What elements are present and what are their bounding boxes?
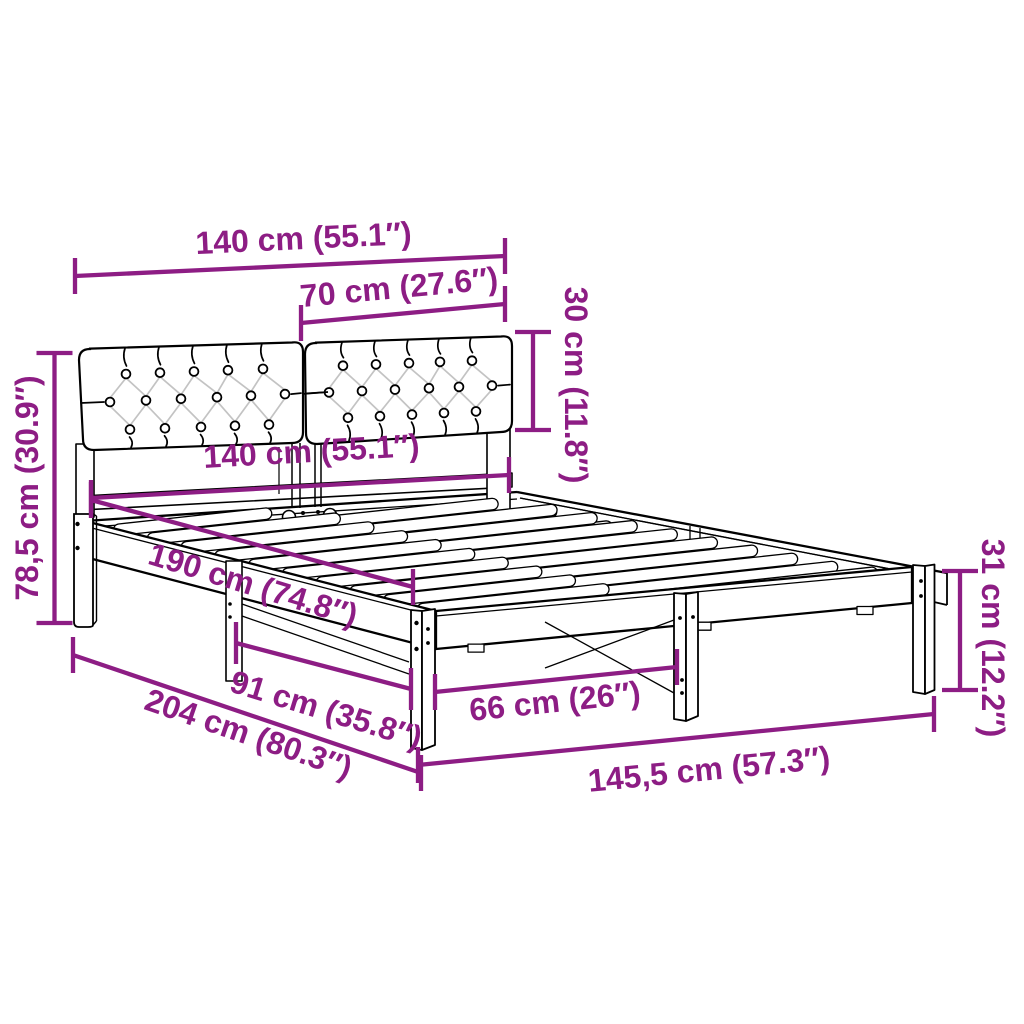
svg-text:31 cm (12.2″): 31 cm (12.2″) [975,539,1011,738]
svg-text:30 cm (11.8″): 30 cm (11.8″) [558,287,594,484]
svg-text:78,5 cm (30.9″): 78,5 cm (30.9″) [9,375,45,600]
